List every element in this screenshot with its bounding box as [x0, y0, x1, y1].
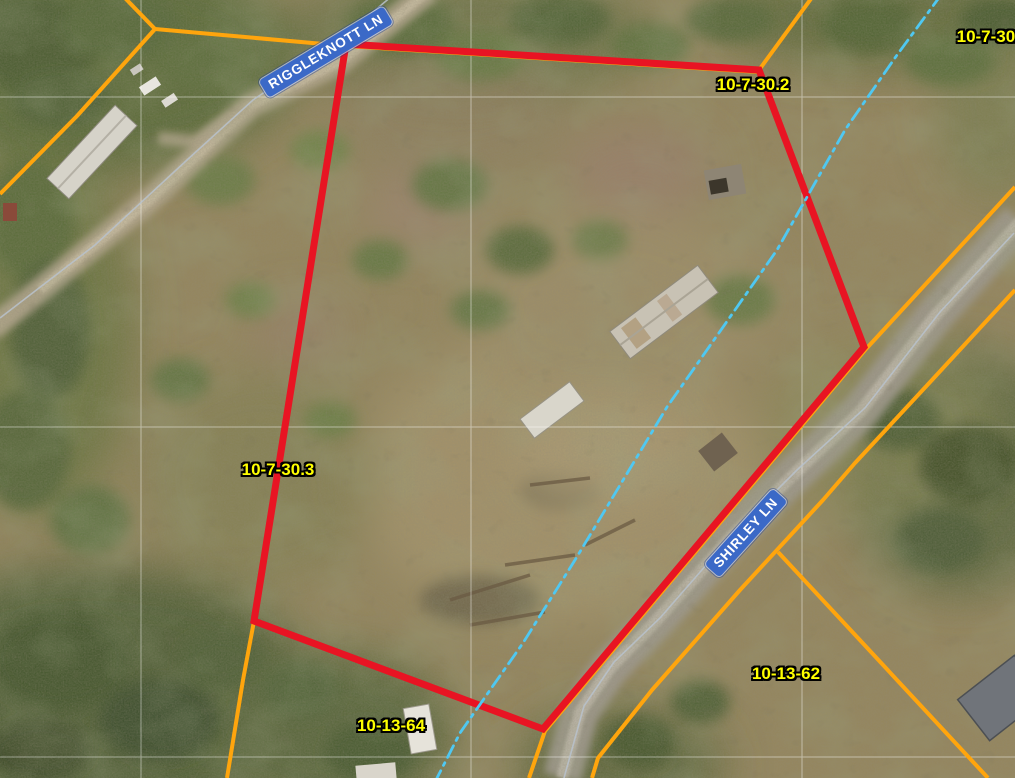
map-viewport[interactable]: 10-7-30.210-7-30.410-7-30.310-13-6210-13… — [0, 0, 1015, 778]
texture-shadow — [0, 0, 1015, 778]
aerial-imagery-layer — [0, 0, 1015, 778]
shed-red-leftedge — [3, 203, 17, 221]
